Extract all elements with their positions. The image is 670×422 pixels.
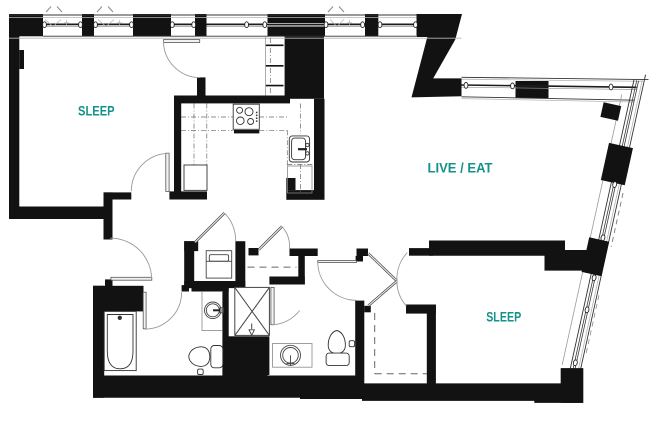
svg-text:LIVE / EAT: LIVE / EAT [428,160,493,176]
svg-text:SLEEP: SLEEP [486,308,521,324]
svg-text:SLEEP: SLEEP [78,103,115,119]
